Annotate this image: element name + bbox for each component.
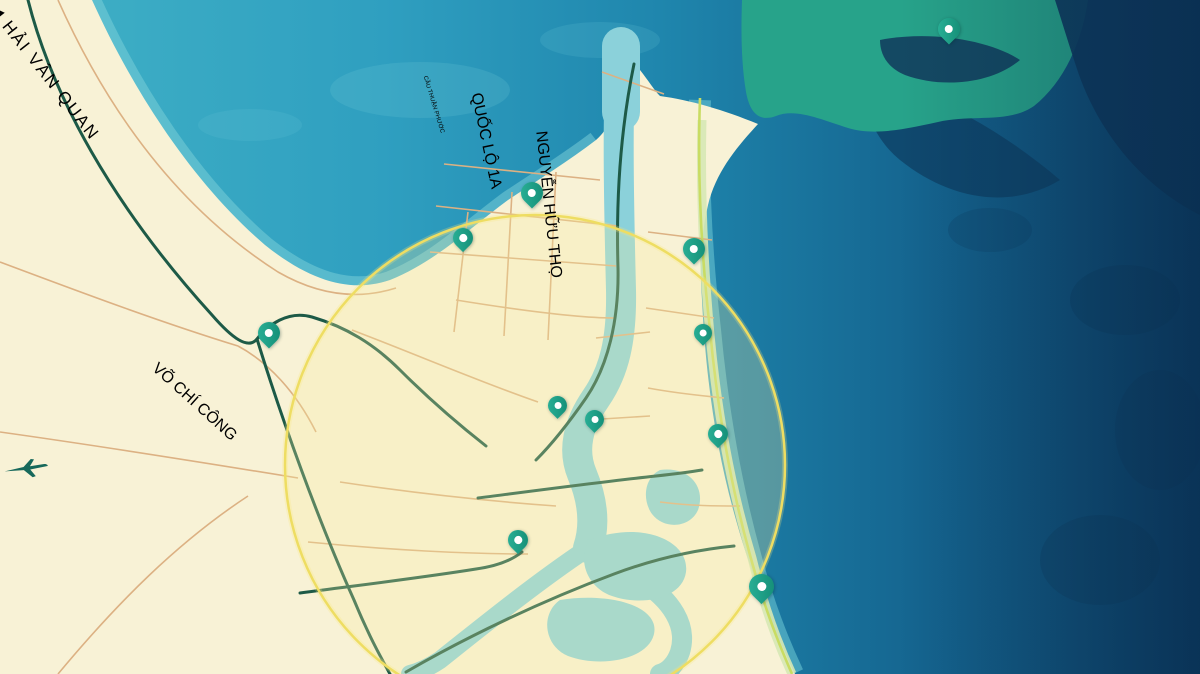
location-map: ◀ HẢI VÂN QUAN VỊNH ĐÀ NẴNG BÁN ĐẢO SƠN …: [0, 0, 1200, 674]
map-base: [0, 0, 1200, 674]
